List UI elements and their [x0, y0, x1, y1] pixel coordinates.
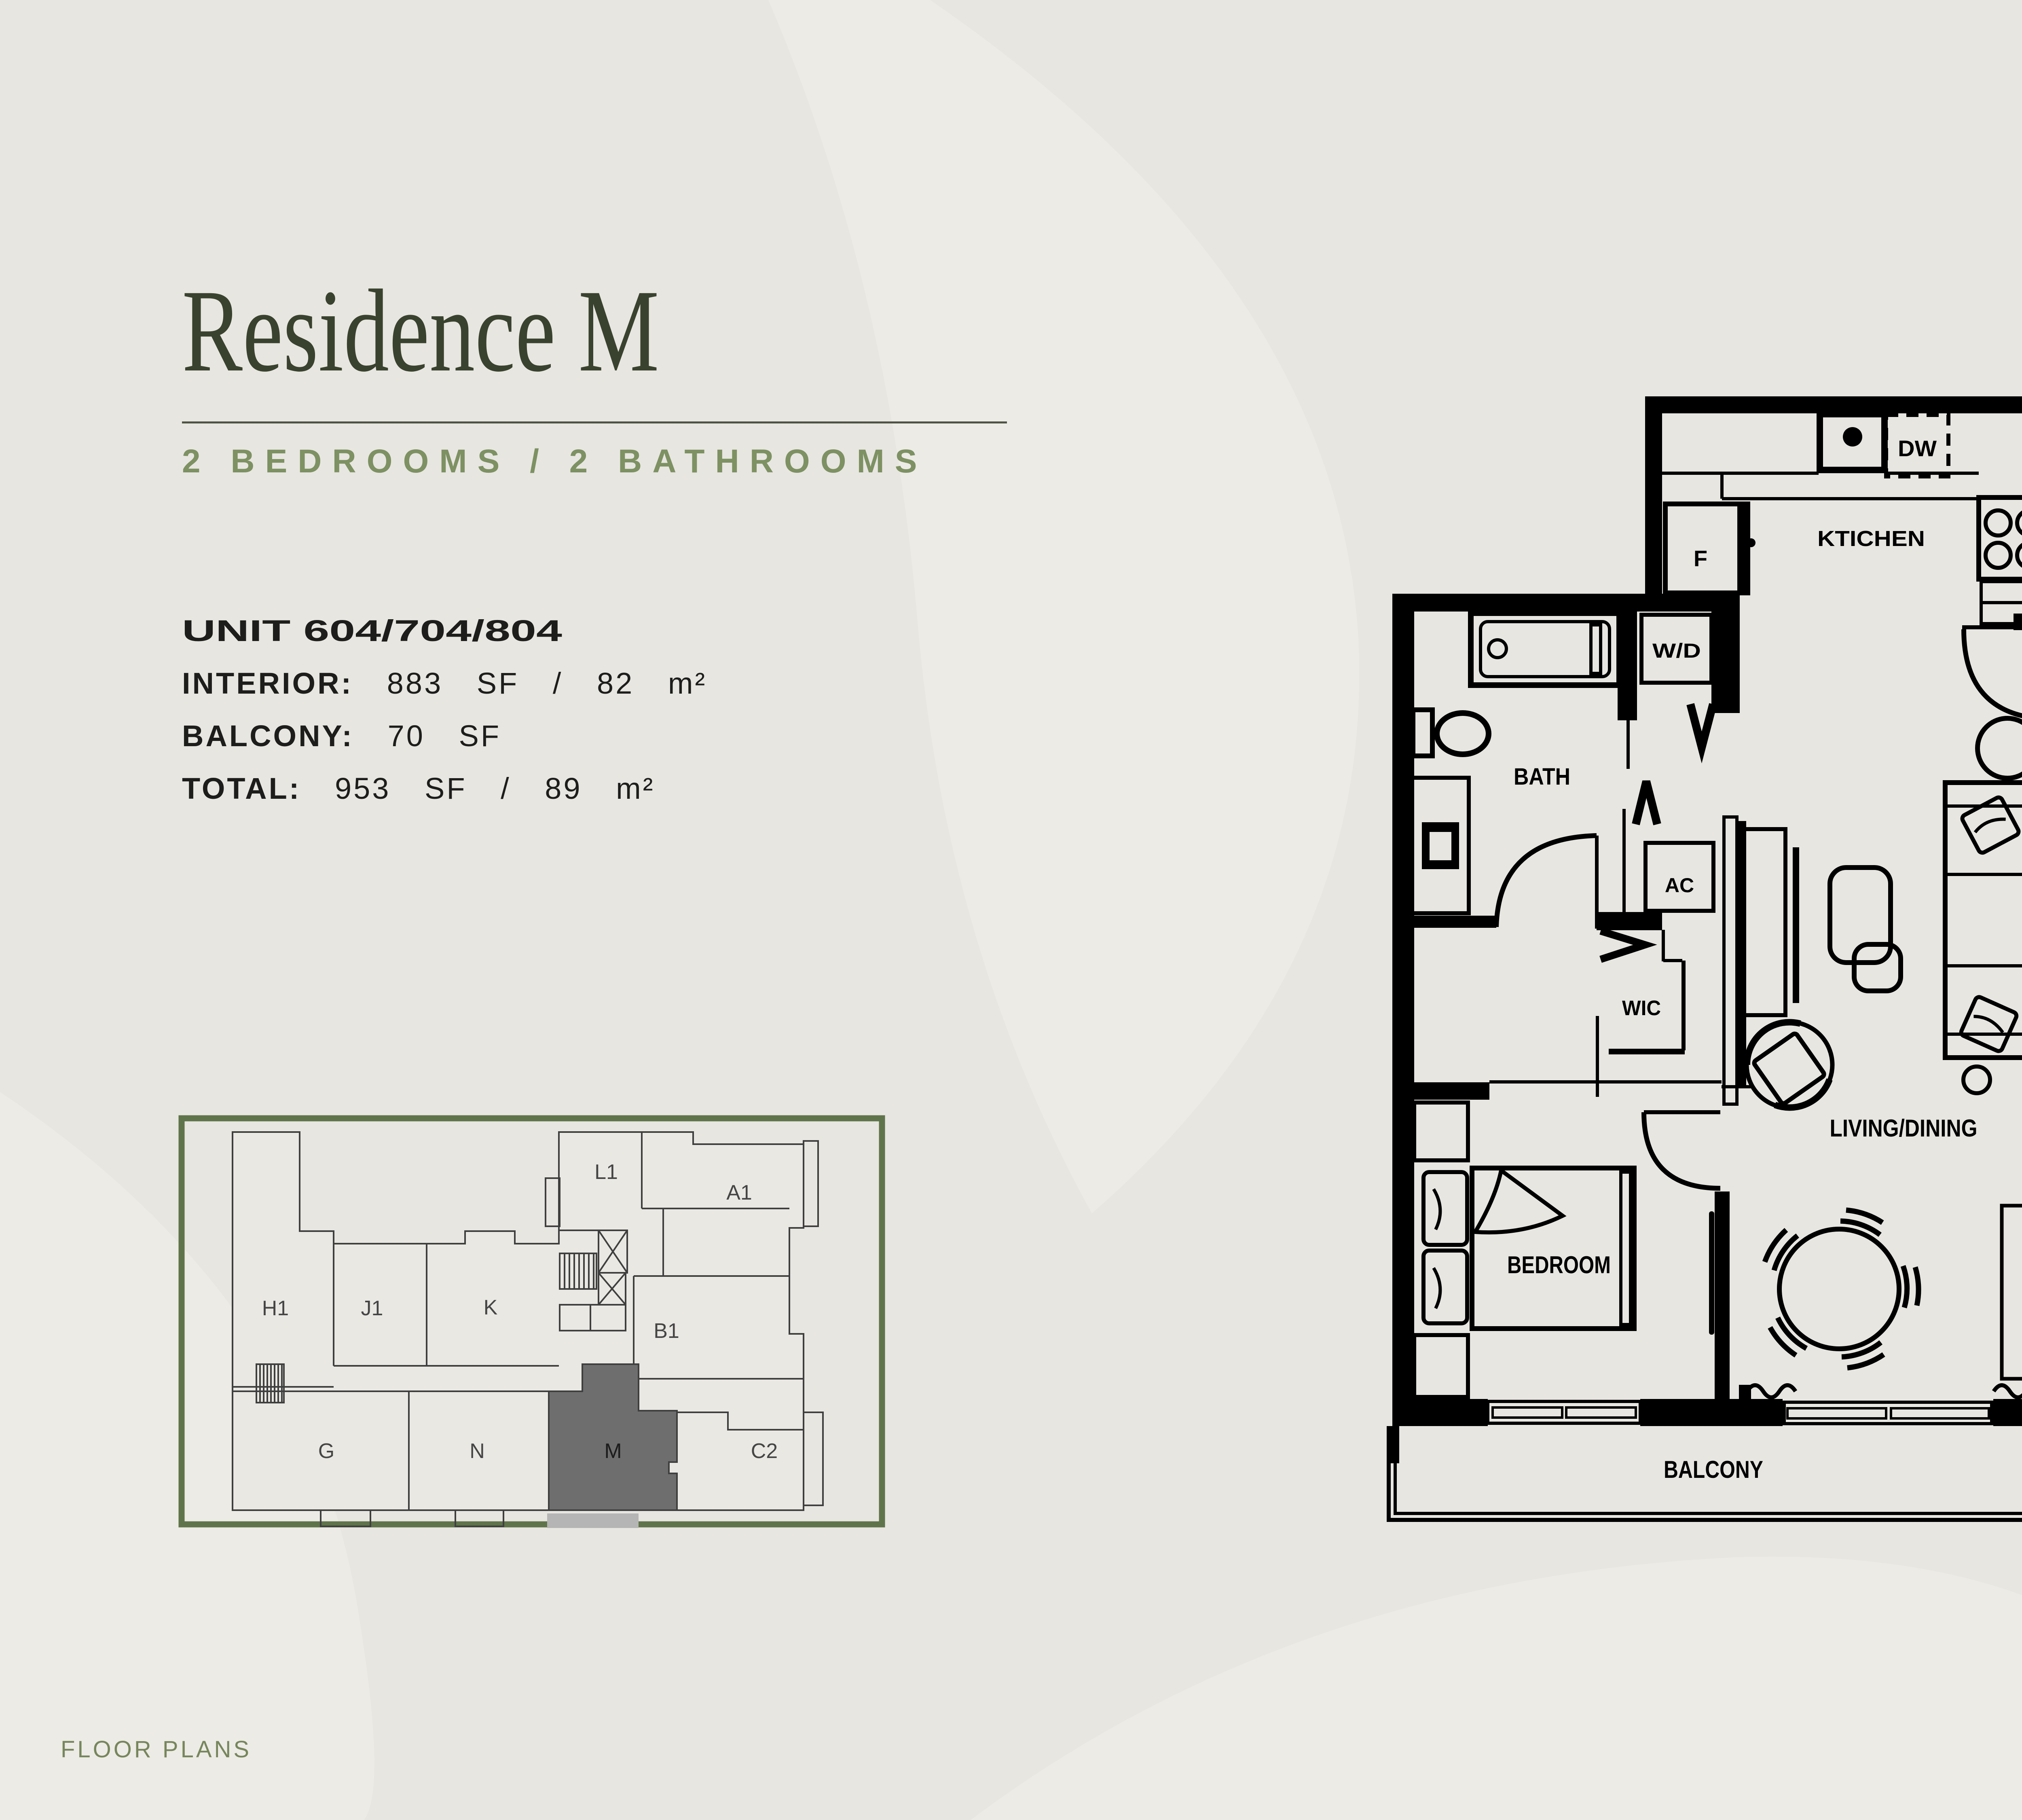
svg-text:BALCONY: BALCONY	[1664, 1456, 1763, 1483]
svg-text:A1: A1	[726, 1181, 752, 1204]
svg-text:G: G	[318, 1439, 334, 1463]
svg-text:C2: C2	[751, 1439, 778, 1463]
svg-text:INTERIOR: 883 SF / 82 m²: INTERIOR: 883 SF / 82 m²	[182, 667, 707, 700]
svg-text:KTICHEN: KTICHEN	[1817, 527, 1925, 551]
svg-text:2 BEDROOMS / 2 BATHROOMS: 2 BEDROOMS / 2 BATHROOMS	[182, 443, 927, 480]
svg-text:B1: B1	[654, 1319, 679, 1343]
svg-text:BEDROOM: BEDROOM	[1507, 1251, 1611, 1278]
svg-text:W/D: W/D	[1652, 639, 1701, 662]
svg-text:N: N	[470, 1439, 485, 1463]
svg-text:F: F	[1694, 546, 1707, 571]
svg-text:FLOOR PLANS: FLOOR PLANS	[61, 1736, 252, 1763]
svg-text:UNIT 604/704/804: UNIT 604/704/804	[182, 614, 562, 648]
svg-text:K: K	[484, 1296, 498, 1319]
svg-text:BALCONY: 70 SF: BALCONY: 70 SF	[182, 719, 501, 753]
svg-text:LIVING/DINING: LIVING/DINING	[1830, 1115, 1978, 1142]
svg-text:H1: H1	[262, 1297, 289, 1320]
svg-text:J1: J1	[361, 1297, 383, 1320]
svg-text:L1: L1	[594, 1160, 618, 1184]
svg-text:AC: AC	[1665, 874, 1694, 897]
svg-text:BATH: BATH	[1514, 764, 1570, 790]
svg-text:WIC: WIC	[1622, 997, 1661, 1020]
svg-text:TOTAL: 953 SF / 89 m²: TOTAL: 953 SF / 89 m²	[182, 772, 655, 805]
svg-text:Residence M: Residence M	[182, 266, 659, 396]
svg-text:DW: DW	[1898, 436, 1937, 461]
svg-text:M: M	[604, 1439, 622, 1463]
